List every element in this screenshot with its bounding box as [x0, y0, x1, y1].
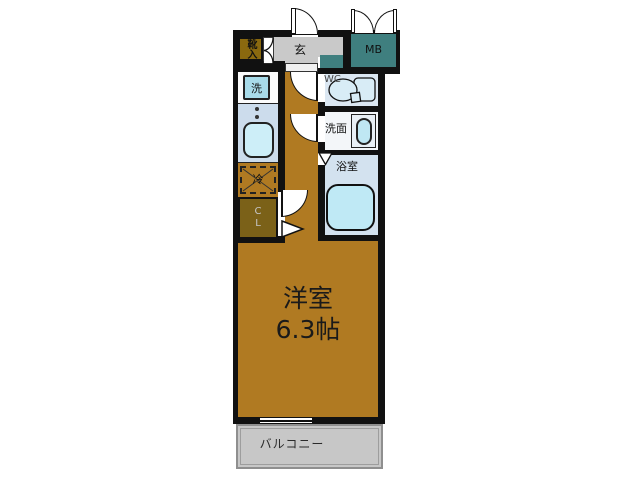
washroom-label: 洗面	[325, 123, 347, 135]
vanity-sink-icon	[356, 118, 372, 145]
mb-door-left-swing-icon	[353, 10, 374, 33]
wall-segment	[322, 106, 378, 112]
main-room-name: 洋室	[238, 283, 378, 314]
balcony-label: バルコニー	[232, 438, 352, 451]
wall-segment	[318, 235, 385, 241]
mb-door-right-swing-icon	[374, 10, 395, 33]
washroom-door-opening	[318, 116, 325, 142]
main-room-label: 洋室 6.3帖	[238, 283, 378, 346]
entrance-door-leaf-icon	[291, 8, 296, 34]
mb-door-left-leaf-icon	[351, 9, 355, 33]
wall-segment	[233, 30, 292, 37]
pipe-space	[320, 55, 343, 68]
bathroom-label: 浴室	[322, 159, 372, 175]
entrance-floor-extension	[318, 37, 343, 57]
closet: CL	[238, 197, 278, 239]
meter-box-label: MB	[351, 42, 396, 58]
room-door-leaf-icon	[281, 220, 305, 238]
shoe-cabinet-door-icon	[263, 37, 274, 64]
refrigerator-label: 冷	[240, 166, 276, 194]
kitchen-sink-icon	[243, 122, 274, 158]
stove-burner-icon	[255, 115, 259, 119]
balcony-window-icon	[260, 417, 312, 424]
bathtub-icon	[326, 184, 375, 231]
mb-door-right-leaf-icon	[393, 9, 397, 33]
washer-icon: 洗	[243, 75, 270, 100]
closet-label: CL	[253, 206, 264, 231]
floor-plan: 靴入 洗 冷 CL 玄 MB WC 洗面 浴室 洋室 6.3帖 バルコニー	[0, 0, 640, 480]
wall-segment	[233, 61, 285, 72]
entrance-label: 玄	[286, 42, 314, 60]
shoe-cabinet-label: 靴入	[243, 39, 258, 59]
entrance-door-swing-icon	[293, 8, 318, 34]
washer-label: 洗	[251, 80, 262, 96]
wall-right	[378, 72, 385, 424]
wc-label: WC	[324, 74, 341, 85]
shoe-cabinet: 靴入	[238, 37, 263, 61]
main-room-size: 6.3帖	[238, 314, 378, 345]
stove-burner-icon	[255, 107, 259, 111]
entrance-step	[285, 63, 318, 72]
